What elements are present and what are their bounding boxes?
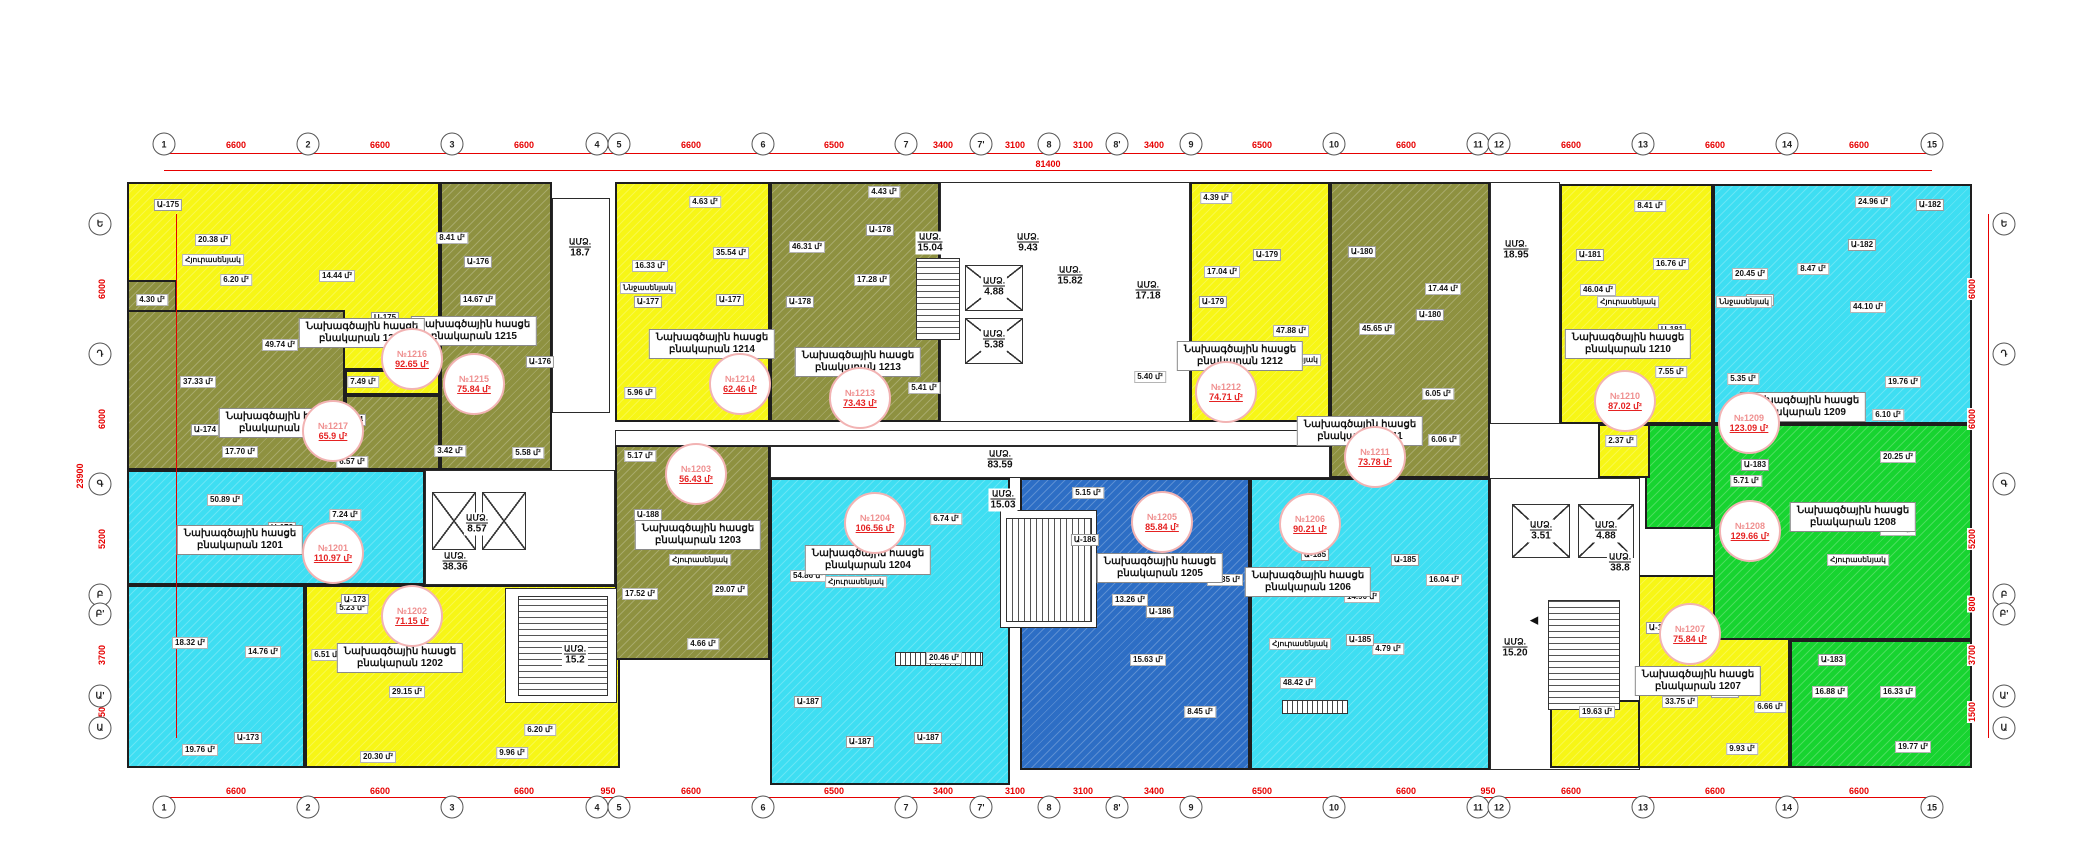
grid-bubble-bottom-10: 10 <box>1323 796 1346 819</box>
core-label-title: ԱՄՁ. <box>1017 232 1039 243</box>
room-area-label: 14.44 մ² <box>319 270 355 282</box>
stamp-area: 123.09 մ² <box>1730 423 1769 434</box>
apartment-number-line: բնակարան 1203 <box>642 535 754 547</box>
room-area-label: 19.63 մ² <box>1579 706 1615 718</box>
dimension-label: 6600 <box>225 786 247 796</box>
grid-bubble-left-Դ: Դ <box>89 343 112 366</box>
apartment-1210-stamp: №121087.02 մ² <box>1594 370 1656 432</box>
grid-bubble-bottom-7: 7 <box>895 796 918 819</box>
detail-callout-label: Ա-174 <box>191 424 219 436</box>
stamp-number: №1208 <box>1735 521 1765 531</box>
apartment-1211-stamp: №121173.78 մ² <box>1344 426 1406 488</box>
room-name-label: Հյուրասենյակ <box>182 254 244 266</box>
stamp-number: №1205 <box>1147 512 1177 522</box>
grid-bubble-bottom-15: 15 <box>1921 796 1944 819</box>
room-area-label: 5.35 մ² <box>1727 373 1759 385</box>
grid-bubble-top-5: 5 <box>608 133 631 156</box>
apartment-1201-stamp: №1201110.97 մ² <box>302 522 364 584</box>
room-name-label: Ննջասենյակ <box>1716 296 1772 308</box>
room-area-label: 19.76 մ² <box>182 744 218 756</box>
detail-callout-label: Ա-178 <box>866 224 894 236</box>
stamp-area: 65.9 մ² <box>319 431 348 442</box>
apartment-1201-label: Նախագծային հասցեբնակարան 1201 <box>177 525 303 555</box>
room-area-label: 4.39 մ² <box>1200 192 1232 204</box>
room-area-label: 9.96 մ² <box>496 747 528 759</box>
dimension-label: 1500 <box>1967 701 1977 723</box>
grid-bubble-bottom-5: 5 <box>608 796 631 819</box>
stamp-number: №1201 <box>318 543 348 553</box>
grid-bubble-left-Ա': Ա' <box>89 685 112 708</box>
grid-bubble-left-Գ: Գ <box>89 473 112 496</box>
room-area-label: 17.44 մ² <box>1425 283 1461 295</box>
apartment-address-line: Նախագծային հասցե <box>418 319 530 331</box>
core-area-label: ԱՄՁ.3.51 <box>1528 520 1554 543</box>
apartment-1217-stamp: №121765.9 մ² <box>302 400 364 462</box>
room-area-label: 9.93 մ² <box>1726 743 1758 755</box>
room-area-label: 19.77 մ² <box>1895 741 1931 753</box>
room-area-label: 18.32 մ² <box>172 637 208 649</box>
grid-bubble-bottom-8: 8 <box>1038 796 1061 819</box>
entrance-steps-icon <box>1282 700 1348 714</box>
apartment-1214-label: Նախագծային հասցեբնակարան 1214 <box>649 329 775 359</box>
dimension-label: 6000 <box>1967 278 1977 300</box>
grid-bubble-bottom-11: 11 <box>1467 796 1490 819</box>
grid-bubble-top-1: 1 <box>153 133 176 156</box>
room-area-label: 8.47 մ² <box>1797 263 1829 275</box>
dimension-label: 3400 <box>932 786 954 796</box>
room-area-label: 20.38 մ² <box>195 234 231 246</box>
grid-bubble-right-Բ': Բ' <box>1993 603 2016 626</box>
room-area-label: 14.76 մ² <box>245 646 281 658</box>
apartment-address-line: Նախագծային հասցե <box>1572 332 1684 344</box>
room-area-label: 4.79 մ² <box>1372 643 1404 655</box>
room-area-label: 5.96 մ² <box>624 387 656 399</box>
room-area-label: 6.06 մ² <box>1428 434 1460 446</box>
room-area-label: 29.07 մ² <box>712 584 748 596</box>
core-label-title: ԱՄՁ. <box>1057 265 1082 276</box>
apartment-address-line: Նախագծային հասցե <box>802 350 914 362</box>
dimension-label: 6600 <box>369 140 391 150</box>
apartment-1205-stamp: №120585.84 մ² <box>1131 491 1193 553</box>
apartment-1203-label: Նախագծային հասցեբնակարան 1203 <box>635 520 761 550</box>
direction-arrow-icon: ◀ <box>1530 614 1538 627</box>
detail-callout-label: Ա-187 <box>794 696 822 708</box>
apartment-address-line: Նախագծային հասցե <box>1252 570 1364 582</box>
core-label-title: ԱՄՁ. <box>917 232 942 243</box>
core-label-value: 3.51 <box>1530 531 1552 543</box>
detail-callout-label: Ա-177 <box>716 294 744 306</box>
detail-callout-label: Ա-180 <box>1348 246 1376 258</box>
room-area-label: 6.20 մ² <box>220 274 252 286</box>
room-area-label: 14.67 մ² <box>460 294 496 306</box>
dimension-label: 6600 <box>1704 140 1726 150</box>
grid-bubble-bottom-9: 9 <box>1180 796 1203 819</box>
total-dimension-label: 81400 <box>1034 159 1061 169</box>
core-label-value: 15.04 <box>917 243 942 255</box>
core-label-value: 5.38 <box>983 340 1005 352</box>
dimension-line <box>1988 214 1989 738</box>
apartment-1207-stamp: №120775.84 մ² <box>1659 603 1721 665</box>
grid-bubble-right-Դ: Դ <box>1993 343 2016 366</box>
stamp-number: №1216 <box>397 349 427 359</box>
stamp-number: №1213 <box>845 388 875 398</box>
room-area-label: 5.15 մ² <box>1072 487 1104 499</box>
room-area-label: 4.30 մ² <box>136 294 168 306</box>
core-label-value: 38.36 <box>442 562 467 574</box>
dimension-label: 3100 <box>1004 786 1026 796</box>
apartment-address-line: Նախագծային հասցե <box>344 646 456 658</box>
room-area-label: 46.31 մ² <box>789 241 825 253</box>
grid-bubble-bottom-7': 7' <box>970 796 993 819</box>
core-label-title: ԱՄՁ. <box>1135 280 1160 291</box>
stamp-number: №1204 <box>860 513 890 523</box>
core-label-title: ԱՄՁ. <box>569 237 591 248</box>
room-area-label: 49.74 մ² <box>262 339 298 351</box>
core-label-title: ԱՄՁ. <box>1609 552 1631 563</box>
stamp-number: №1206 <box>1295 514 1325 524</box>
dimension-label: 6600 <box>225 140 247 150</box>
apartment-1210-label: Նախագծային հասցեբնակարան 1210 <box>1565 329 1691 359</box>
stamp-number: №1214 <box>725 374 755 384</box>
apartment-address-line: Նախագծային հասցե <box>1797 505 1909 517</box>
room-area-label: 5.40 մ² <box>1134 371 1166 383</box>
room-area-label: 17.28 մ² <box>854 274 890 286</box>
stamp-number: №1202 <box>397 606 427 616</box>
room-area-label: 44.10 մ² <box>1850 301 1886 313</box>
detail-callout-label: Ա-175 <box>154 199 182 211</box>
apartment-1208-label: Նախագծային հասցեբնակարան 1208 <box>1790 502 1916 532</box>
grid-bubble-bottom-13: 13 <box>1632 796 1655 819</box>
detail-callout-label: Ա-182 <box>1916 199 1944 211</box>
stamp-area: 85.84 մ² <box>1145 522 1179 533</box>
room-area-label: 16.88 մ² <box>1812 686 1848 698</box>
core-area-label: ԱՄՁ.18.7 <box>567 237 593 260</box>
grid-bubble-top-3: 3 <box>441 133 464 156</box>
core-area-label: ԱՄՁ.15.04 <box>915 232 944 255</box>
room-area-label: 16.33 մ² <box>632 260 668 272</box>
room-area-label: 5.17 մ² <box>624 450 656 462</box>
grid-bubble-bottom-1: 1 <box>153 796 176 819</box>
stamp-number: №1210 <box>1610 391 1640 401</box>
room-area-label: 7.55 մ² <box>1655 366 1687 378</box>
apartment-1214-stamp: №121462.46 մ² <box>709 353 771 415</box>
grid-bubble-bottom-14: 14 <box>1776 796 1799 819</box>
core-area-label: ԱՄՁ.15.20 <box>1500 637 1529 660</box>
stamp-area: 56.43 մ² <box>679 474 713 485</box>
core-label-value: 15.03 <box>990 500 1015 512</box>
dimension-label: 6500 <box>823 140 845 150</box>
core-label-title: ԱՄՁ. <box>442 551 467 562</box>
dimension-label: 6000 <box>97 408 107 430</box>
total-dimension-label: 23900 <box>75 462 85 489</box>
detail-callout-label: Ա-179 <box>1253 249 1281 261</box>
room-area-label: 4.63 մ² <box>689 196 721 208</box>
apartment-1206-label: Նախագծային հասցեբնակարան 1206 <box>1245 567 1371 597</box>
dimension-label: 800 <box>1967 595 1977 612</box>
grid-bubble-top-11: 11 <box>1467 133 1490 156</box>
dimension-label: 5200 <box>1967 528 1977 550</box>
core-label-value: 15.20 <box>1502 648 1527 660</box>
room-name-label: Հյուրասենյակ <box>669 554 731 566</box>
stamp-area: 74.71 մ² <box>1209 392 1243 403</box>
core-area-label: ԱՄՁ.8.57 <box>464 513 490 536</box>
dimension-label: 3400 <box>1143 786 1165 796</box>
room-name-label: Հյուրասենյակ <box>1827 554 1889 566</box>
grid-bubble-bottom-2: 2 <box>297 796 320 819</box>
grid-bubble-top-4: 4 <box>586 133 609 156</box>
core-label-title: ԱՄՁ. <box>564 644 586 655</box>
dimension-label: 6600 <box>369 786 391 796</box>
room-area-label: 7.49 մ² <box>347 376 379 388</box>
room-area-label: 4.43 մ² <box>868 186 900 198</box>
grid-bubble-top-8': 8' <box>1106 133 1129 156</box>
detail-callout-label: Ա-183 <box>1818 654 1846 666</box>
core-label-title: ԱՄՁ. <box>983 329 1005 340</box>
detail-callout-label: Ա-187 <box>846 736 874 748</box>
core-area-label: ԱՄՁ.4.88 <box>1593 520 1619 543</box>
stamp-area: 73.78 մ² <box>1358 457 1392 468</box>
stamp-area: 87.02 մ² <box>1608 401 1642 412</box>
core-label-value: 15.82 <box>1057 276 1082 288</box>
core-area-label: ԱՄՁ.38.8 <box>1607 552 1633 575</box>
detail-callout-label: Ա-182 <box>1848 239 1876 251</box>
core-area-label: ԱՄՁ.17.18 <box>1133 280 1162 303</box>
apartment-1202-label: Նախագծային հասցեբնակարան 1202 <box>337 643 463 673</box>
stamp-area: 73.43 մ² <box>843 398 877 409</box>
detail-callout-label: Ա-176 <box>464 256 492 268</box>
detail-callout-label: Ա-185 <box>1346 634 1374 646</box>
apartment-address-line: Նախագծային հասցե <box>1104 556 1216 568</box>
grid-bubble-top-7: 7 <box>895 133 918 156</box>
room-area-label: 13.26 մ² <box>1112 594 1148 606</box>
dimension-label: 6500 <box>1251 140 1273 150</box>
stamp-area: 62.46 մ² <box>723 384 757 395</box>
floor-plan-canvas: ▲◀ ԱՄՁ.18.7ԱՄՁ.8.57ԱՄՁ.38.36ԱՄՁ.15.2ԱՄՁ.… <box>0 0 2100 861</box>
detail-callout-label: Ա-187 <box>914 732 942 744</box>
dimension-label: 6600 <box>1395 786 1417 796</box>
apartment-number-line: բնակարան 1205 <box>1104 568 1216 580</box>
core-area-label: ԱՄՁ.9.43 <box>1015 232 1041 255</box>
apartment-number-line: բնակարան 1207 <box>1642 681 1754 693</box>
dimension-label: 3700 <box>1967 644 1977 666</box>
room-area-label: 3.42 մ² <box>434 445 466 457</box>
core-area-label: ԱՄՁ.15.82 <box>1055 265 1084 288</box>
room-area-label: 48.42 մ² <box>1280 677 1316 689</box>
room-area-label: 46.04 մ² <box>1580 284 1616 296</box>
core-label-value: 4.88 <box>983 287 1005 299</box>
dimension-label: 6600 <box>513 786 535 796</box>
core-area-label: ԱՄՁ.18.95 <box>1501 239 1530 262</box>
room-area-label: 6.74 մ² <box>930 513 962 525</box>
apartment-1202-stamp: №120271.15 մ² <box>381 585 443 647</box>
core-label-value: 4.88 <box>1595 531 1617 543</box>
detail-callout-label: Ա-173 <box>341 594 369 606</box>
dimension-label: 3400 <box>1143 140 1165 150</box>
grid-bubble-right-Ա: Ա <box>1993 717 2016 740</box>
core-label-value: 8.57 <box>466 524 488 536</box>
room-area-label: 16.33 մ² <box>1880 686 1916 698</box>
room-area-label: 6.10 մ² <box>1872 409 1904 421</box>
dimension-label: 6000 <box>1967 408 1977 430</box>
core-label-title: ԱՄՁ. <box>983 276 1005 287</box>
apartment-address-line: Նախագծային հասցե <box>1642 669 1754 681</box>
grid-bubble-top-13: 13 <box>1632 133 1655 156</box>
core-label-value: 83.59 <box>987 460 1012 472</box>
apartment-1212-stamp: №121274.71 մ² <box>1195 361 1257 423</box>
room-area-label: 6.05 մ² <box>1422 388 1454 400</box>
stamp-area: 106.56 մ² <box>856 523 895 534</box>
room-area-label: 19.76 մ² <box>1885 376 1921 388</box>
room-area-label: 5.71 մ² <box>1730 475 1762 487</box>
core-label-value: 15.2 <box>564 655 586 667</box>
room-area-label: 33.75 մ² <box>1662 696 1698 708</box>
apartment-1204-stamp: №1204106.56 մ² <box>844 492 906 554</box>
room-area-label: 35.54 մ² <box>713 247 749 259</box>
grid-bubble-left-Բ': Բ' <box>89 603 112 626</box>
grid-bubble-bottom-8': 8' <box>1106 796 1129 819</box>
dimension-label: 3100 <box>1072 140 1094 150</box>
dimension-label: 3700 <box>97 644 107 666</box>
grid-bubble-top-7': 7' <box>970 133 993 156</box>
room-area-label: 4.66 մ² <box>687 638 719 650</box>
core-label-value: 18.95 <box>1503 250 1528 262</box>
room-area-label: 17.70 մ² <box>222 446 258 458</box>
apartment-address-line: Նախագծային հասցե <box>184 528 296 540</box>
detail-callout-label: Ա-181 <box>1576 249 1604 261</box>
room-area-label: 24.96 մ² <box>1855 196 1891 208</box>
detail-callout-label: Ա-186 <box>1146 606 1174 618</box>
room-area-label: 20.25 մ² <box>1880 451 1916 463</box>
grid-bubble-right-Գ: Գ <box>1993 473 2016 496</box>
room-area-label: 5.41 մ² <box>908 382 940 394</box>
core-area-label: ԱՄՁ.38.36 <box>440 551 469 574</box>
apartment-1208-stamp: №1208129.66 մ² <box>1719 500 1781 562</box>
stamp-area: 75.84 մ² <box>1673 634 1707 645</box>
room-area-label: 47.88 մ² <box>1273 325 1309 337</box>
core-area-label: ԱՄՁ.5.38 <box>981 329 1007 352</box>
room-area-label: 7.24 մ² <box>329 509 361 521</box>
stamp-number: №1215 <box>459 374 489 384</box>
room-area-label: 16.04 մ² <box>1426 574 1462 586</box>
apartment-number-line: բնակարան 1204 <box>812 560 924 572</box>
room-area-label: 17.04 մ² <box>1204 266 1240 278</box>
dimension-label: 6600 <box>1848 786 1870 796</box>
grid-bubble-top-12: 12 <box>1488 133 1511 156</box>
grid-bubble-top-9: 9 <box>1180 133 1203 156</box>
dimension-label: 6600 <box>1848 140 1870 150</box>
detail-callout-label: Ա-177 <box>634 296 662 308</box>
dimension-label: 6500 <box>823 786 845 796</box>
core-label-value: 38.8 <box>1609 563 1631 575</box>
room-area-label: 20.45 մ² <box>1732 268 1768 280</box>
grid-bubble-right-Ե: Ե <box>1993 213 2016 236</box>
room-area-label: 6.20 մ² <box>524 724 556 736</box>
stamp-area: 75.84 մ² <box>457 384 491 395</box>
apartment-number-line: բնակարան 1201 <box>184 540 296 552</box>
dimension-label: 3400 <box>932 140 954 150</box>
detail-callout-label: Ա-183 <box>1741 459 1769 471</box>
stamp-number: №1212 <box>1211 382 1241 392</box>
stamp-area: 90.21 մ² <box>1293 524 1327 535</box>
core-label-value: 9.43 <box>1017 243 1039 255</box>
dimension-label: 6600 <box>680 786 702 796</box>
stamp-number: №1209 <box>1734 413 1764 423</box>
core-area-label: ԱՄՁ.15.2 <box>562 644 588 667</box>
core-area-label: ԱՄՁ.4.88 <box>981 276 1007 299</box>
apartment-number-line: բնակարան 1202 <box>344 658 456 670</box>
detail-callout-label: Ա-173 <box>234 732 262 744</box>
apartment-address-line: Նախագծային հասցե <box>642 523 754 535</box>
dimension-label: 6600 <box>1560 140 1582 150</box>
stamp-number: №1203 <box>681 464 711 474</box>
detail-callout-label: Ա-179 <box>1199 296 1227 308</box>
room-area-label: 45.65 մ² <box>1359 323 1395 335</box>
apartment-1213-stamp: №121373.43 մ² <box>829 367 891 429</box>
dimension-label: 6000 <box>97 278 107 300</box>
room-area-label: 8.41 մ² <box>1634 200 1666 212</box>
dimension-label: 5200 <box>97 528 107 550</box>
core-label-title: ԱՄՁ. <box>1530 520 1552 531</box>
dimension-label: 950 <box>599 786 616 796</box>
core-label-title: ԱՄՁ. <box>1503 239 1528 250</box>
grid-bubble-bottom-6: 6 <box>752 796 775 819</box>
grid-bubble-bottom-4: 4 <box>586 796 609 819</box>
room-area-label: 15.63 մ² <box>1130 654 1166 666</box>
apartment-1215-stamp: №121575.84 մ² <box>443 353 505 415</box>
grid-bubble-right-Ա': Ա' <box>1993 685 2016 708</box>
core-area-label: ԱՄՁ.83.59 <box>985 449 1014 472</box>
stamp-area: 92.65 մ² <box>395 359 429 370</box>
grid-bubble-left-Ա: Ա <box>89 717 112 740</box>
room-area-label: 6.66 մ² <box>1754 701 1786 713</box>
dimension-label: 6500 <box>1251 786 1273 796</box>
room-area-label: 8.41 մ² <box>436 232 468 244</box>
detail-callout-label: Ա-186 <box>1071 534 1099 546</box>
dimension-label: 6600 <box>1560 786 1582 796</box>
stamp-area: 110.97 մ² <box>314 553 352 564</box>
room-name-label: Հյուրասենյակ <box>825 576 887 588</box>
grid-bubble-top-6: 6 <box>752 133 775 156</box>
room-area-label: 29.15 մ² <box>389 686 425 698</box>
core-label-title: ԱՄՁ. <box>466 513 488 524</box>
dimension-label: 3100 <box>1004 140 1026 150</box>
core-label-value: 17.18 <box>1135 291 1160 303</box>
grid-bubble-bottom-12: 12 <box>1488 796 1511 819</box>
apartment-number-line: բնակարան 1210 <box>1572 344 1684 356</box>
room-area-label: 16.76 մ² <box>1653 258 1689 270</box>
room-area-label: 50.89 մ² <box>207 494 243 506</box>
grid-bubble-left-Ե: Ե <box>89 213 112 236</box>
room-area-label: 20.46 մ² <box>926 652 962 664</box>
dimension-label: 950 <box>1479 786 1496 796</box>
grid-bubble-top-2: 2 <box>297 133 320 156</box>
apartment-1216-stamp: №121692.65 մ² <box>381 328 443 390</box>
apartment-number-line: բնակարան 1208 <box>1797 517 1909 529</box>
detail-callout-label: Ա-176 <box>526 356 554 368</box>
dimension-label: 6600 <box>680 140 702 150</box>
stamp-area: 71.15 մ² <box>395 616 429 627</box>
grid-bubble-top-15: 15 <box>1921 133 1944 156</box>
stamp-number: №1217 <box>318 421 348 431</box>
room-area-label: 2.37 մ² <box>1605 435 1637 447</box>
grid-bubble-top-10: 10 <box>1323 133 1346 156</box>
grid-bubble-top-14: 14 <box>1776 133 1799 156</box>
stamp-number: №1211 <box>1360 447 1390 457</box>
apartment-1207-label: Նախագծային հասցեբնակարան 1207 <box>1635 666 1761 696</box>
stamp-area: 129.66 մ² <box>1731 531 1770 542</box>
room-name-label: Ննջասենյակ <box>620 282 676 294</box>
dimension-line <box>164 170 1932 171</box>
